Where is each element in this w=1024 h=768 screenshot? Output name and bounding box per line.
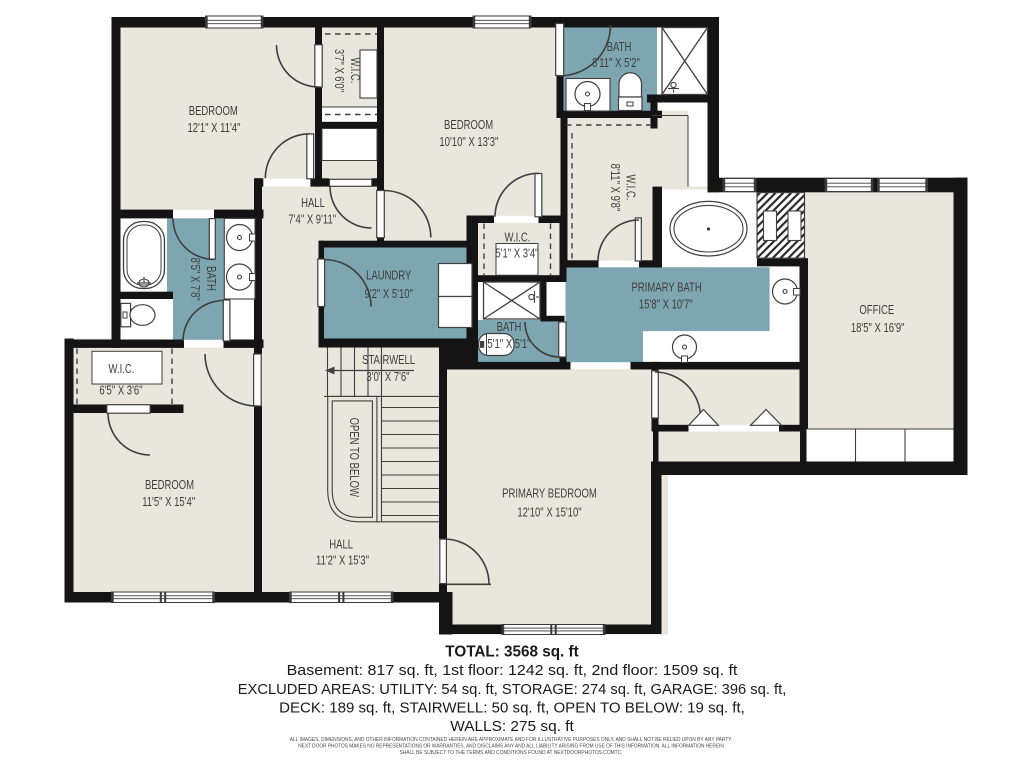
svg-text:W.I.C.: W.I.C. (623, 175, 637, 201)
svg-text:W.I.C.: W.I.C. (109, 363, 135, 377)
svg-text:12'10" X 15'10": 12'10" X 15'10" (517, 506, 581, 520)
svg-text:18'5" X 16'9": 18'5" X 16'9" (851, 322, 905, 336)
svg-text:3'7" X 6'0": 3'7" X 6'0" (331, 49, 345, 92)
svg-text:DECK: 189 sq. ft, STAIRWELL: 5: DECK: 189 sq. ft, STAIRWELL: 50 sq. ft, … (279, 700, 745, 717)
svg-text:HALL: HALL (301, 197, 325, 211)
svg-text:EXCLUDED AREAS: UTILITY: 54 sq: EXCLUDED AREAS: UTILITY: 54 sq. ft, STOR… (238, 681, 787, 698)
svg-text:12'1" X 11'4": 12'1" X 11'4" (187, 122, 240, 136)
svg-text:15'8" X 10'7": 15'8" X 10'7" (639, 298, 693, 312)
svg-text:6'5" X 3'6": 6'5" X 3'6" (99, 384, 142, 398)
svg-text:BATH: BATH (607, 41, 632, 55)
svg-text:PRIMARY BEDROOM: PRIMARY BEDROOM (502, 487, 597, 501)
svg-text:W.I.C.: W.I.C. (347, 58, 361, 84)
svg-text:ALL IMAGES, DIMENSIONS, AND OT: ALL IMAGES, DIMENSIONS, AND OTHER INFORM… (290, 737, 733, 743)
svg-text:HALL: HALL (329, 538, 353, 552)
svg-text:11'5" X 15'4": 11'5" X 15'4" (142, 496, 195, 510)
svg-text:5'1" X 3'4": 5'1" X 3'4" (495, 247, 538, 261)
svg-text:10'10" X 13'3": 10'10" X 13'3" (439, 136, 498, 150)
svg-text:LAUNDRY: LAUNDRY (366, 269, 412, 283)
svg-text:OPEN TO BELOW: OPEN TO BELOW (347, 418, 361, 498)
svg-text:8'11" X 5'2": 8'11" X 5'2" (592, 57, 640, 71)
svg-text:BATH: BATH (204, 266, 218, 291)
svg-text:PRIMARY BATH: PRIMARY BATH (631, 281, 701, 295)
svg-text:Basement: 817 sq. ft, 1st floo: Basement: 817 sq. ft, 1st floor: 1242 sq… (287, 662, 739, 679)
svg-text:8'11" X 9'8": 8'11" X 9'8" (607, 164, 621, 212)
svg-text:3'0" X 7'6": 3'0" X 7'6" (366, 371, 409, 385)
svg-text:SHALL BE SUBJECT TO THE TERMS: SHALL BE SUBJECT TO THE TERMS AND CONDIT… (399, 750, 622, 756)
svg-text:BEDROOM: BEDROOM (145, 478, 194, 492)
svg-text:8'5" X 7'8": 8'5" X 7'8" (188, 258, 202, 301)
svg-text:BATH: BATH (497, 321, 522, 335)
svg-text:9'2" X 5'10": 9'2" X 5'10" (364, 288, 412, 302)
svg-text:STAIRWELL: STAIRWELL (362, 354, 415, 368)
svg-text:7'4" X 9'11": 7'4" X 9'11" (288, 213, 336, 227)
svg-text:TOTAL: 3568 sq. ft: TOTAL: 3568 sq. ft (445, 644, 578, 661)
svg-text:BEDROOM: BEDROOM (189, 105, 238, 119)
svg-text:11'2" X 15'3": 11'2" X 15'3" (316, 554, 369, 568)
svg-text:5'1" X 5'1": 5'1" X 5'1" (487, 338, 530, 352)
svg-text:BEDROOM: BEDROOM (444, 119, 493, 133)
svg-text:WALLS: 275 sq. ft: WALLS: 275 sq. ft (450, 718, 574, 735)
svg-text:W.I.C.: W.I.C. (505, 231, 531, 245)
svg-text:OFFICE: OFFICE (859, 303, 894, 317)
svg-text:NEXT DOOR PHOTOS MAKES NO REPR: NEXT DOOR PHOTOS MAKES NO REPRESENTATION… (298, 744, 724, 750)
